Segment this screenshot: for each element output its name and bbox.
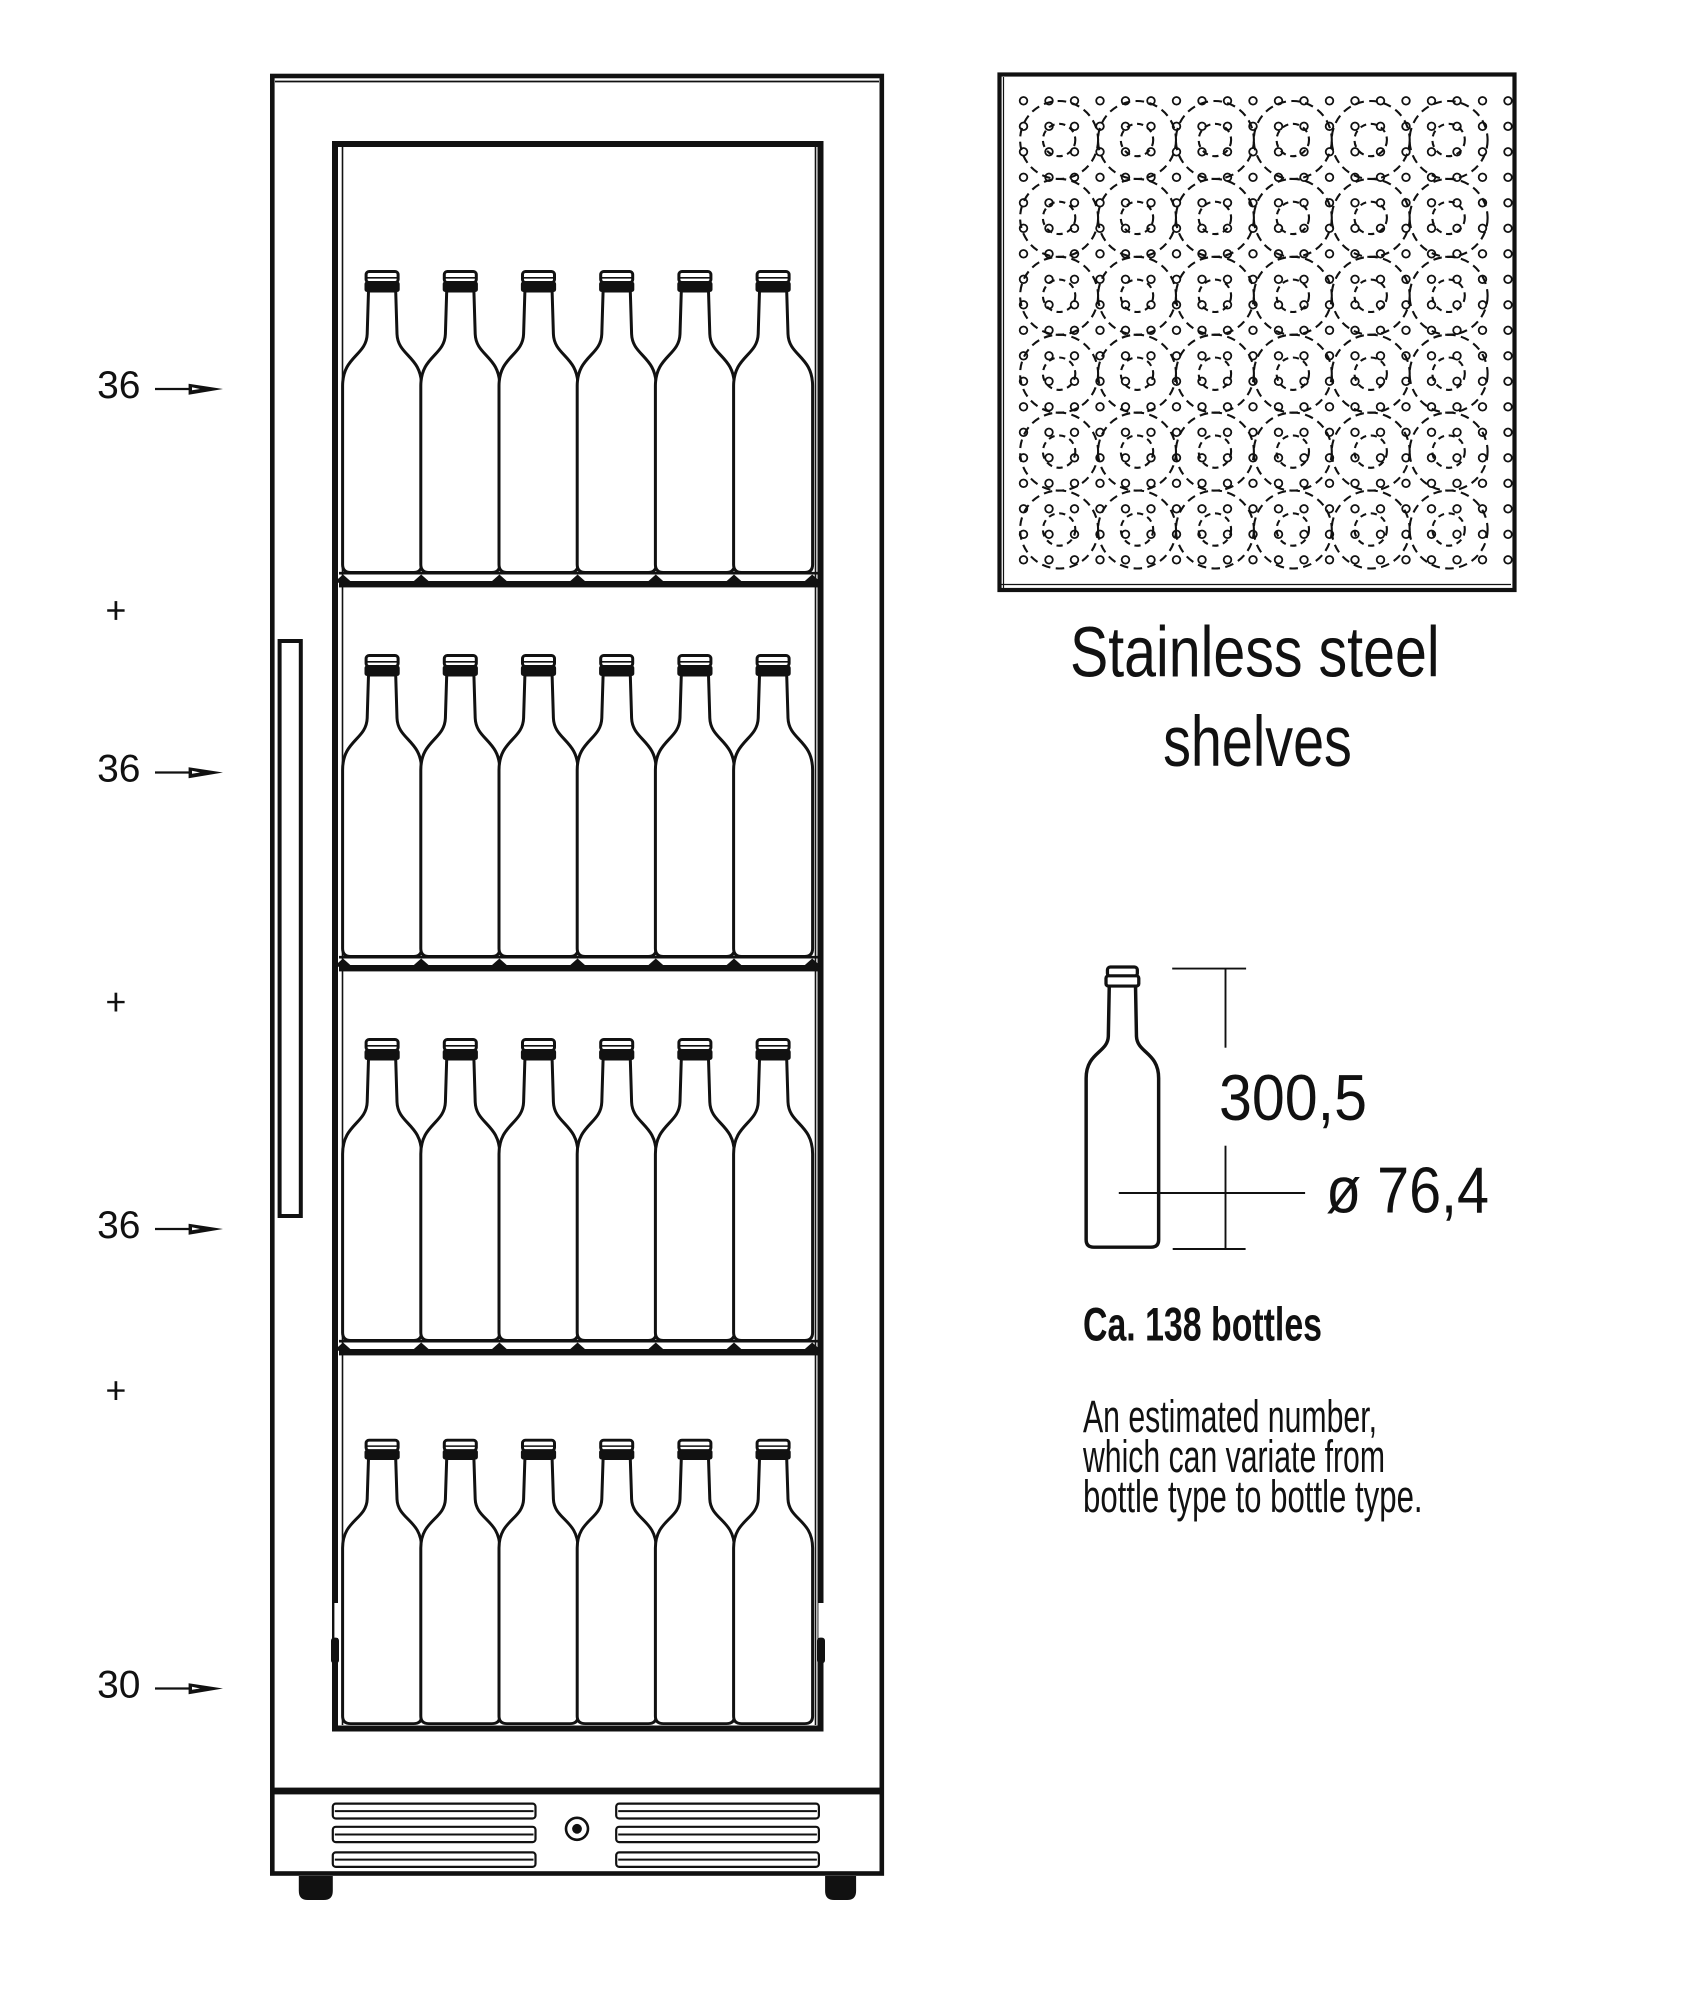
svg-text:36: 36 [97,748,140,791]
svg-text:Stainless steel: Stainless steel [1070,613,1440,693]
svg-text:300,5: 300,5 [1219,1062,1367,1134]
svg-text:30: 30 [97,1664,140,1707]
svg-text:36: 36 [97,1204,140,1247]
svg-text:ø 76,4: ø 76,4 [1326,1155,1489,1227]
svg-text:shelves: shelves [1163,702,1352,782]
svg-text:bottle type to bottle type.: bottle type to bottle type. [1083,1471,1423,1522]
svg-text:36: 36 [97,364,140,407]
svg-text:Ca. 138 bottles: Ca. 138 bottles [1083,1298,1322,1351]
